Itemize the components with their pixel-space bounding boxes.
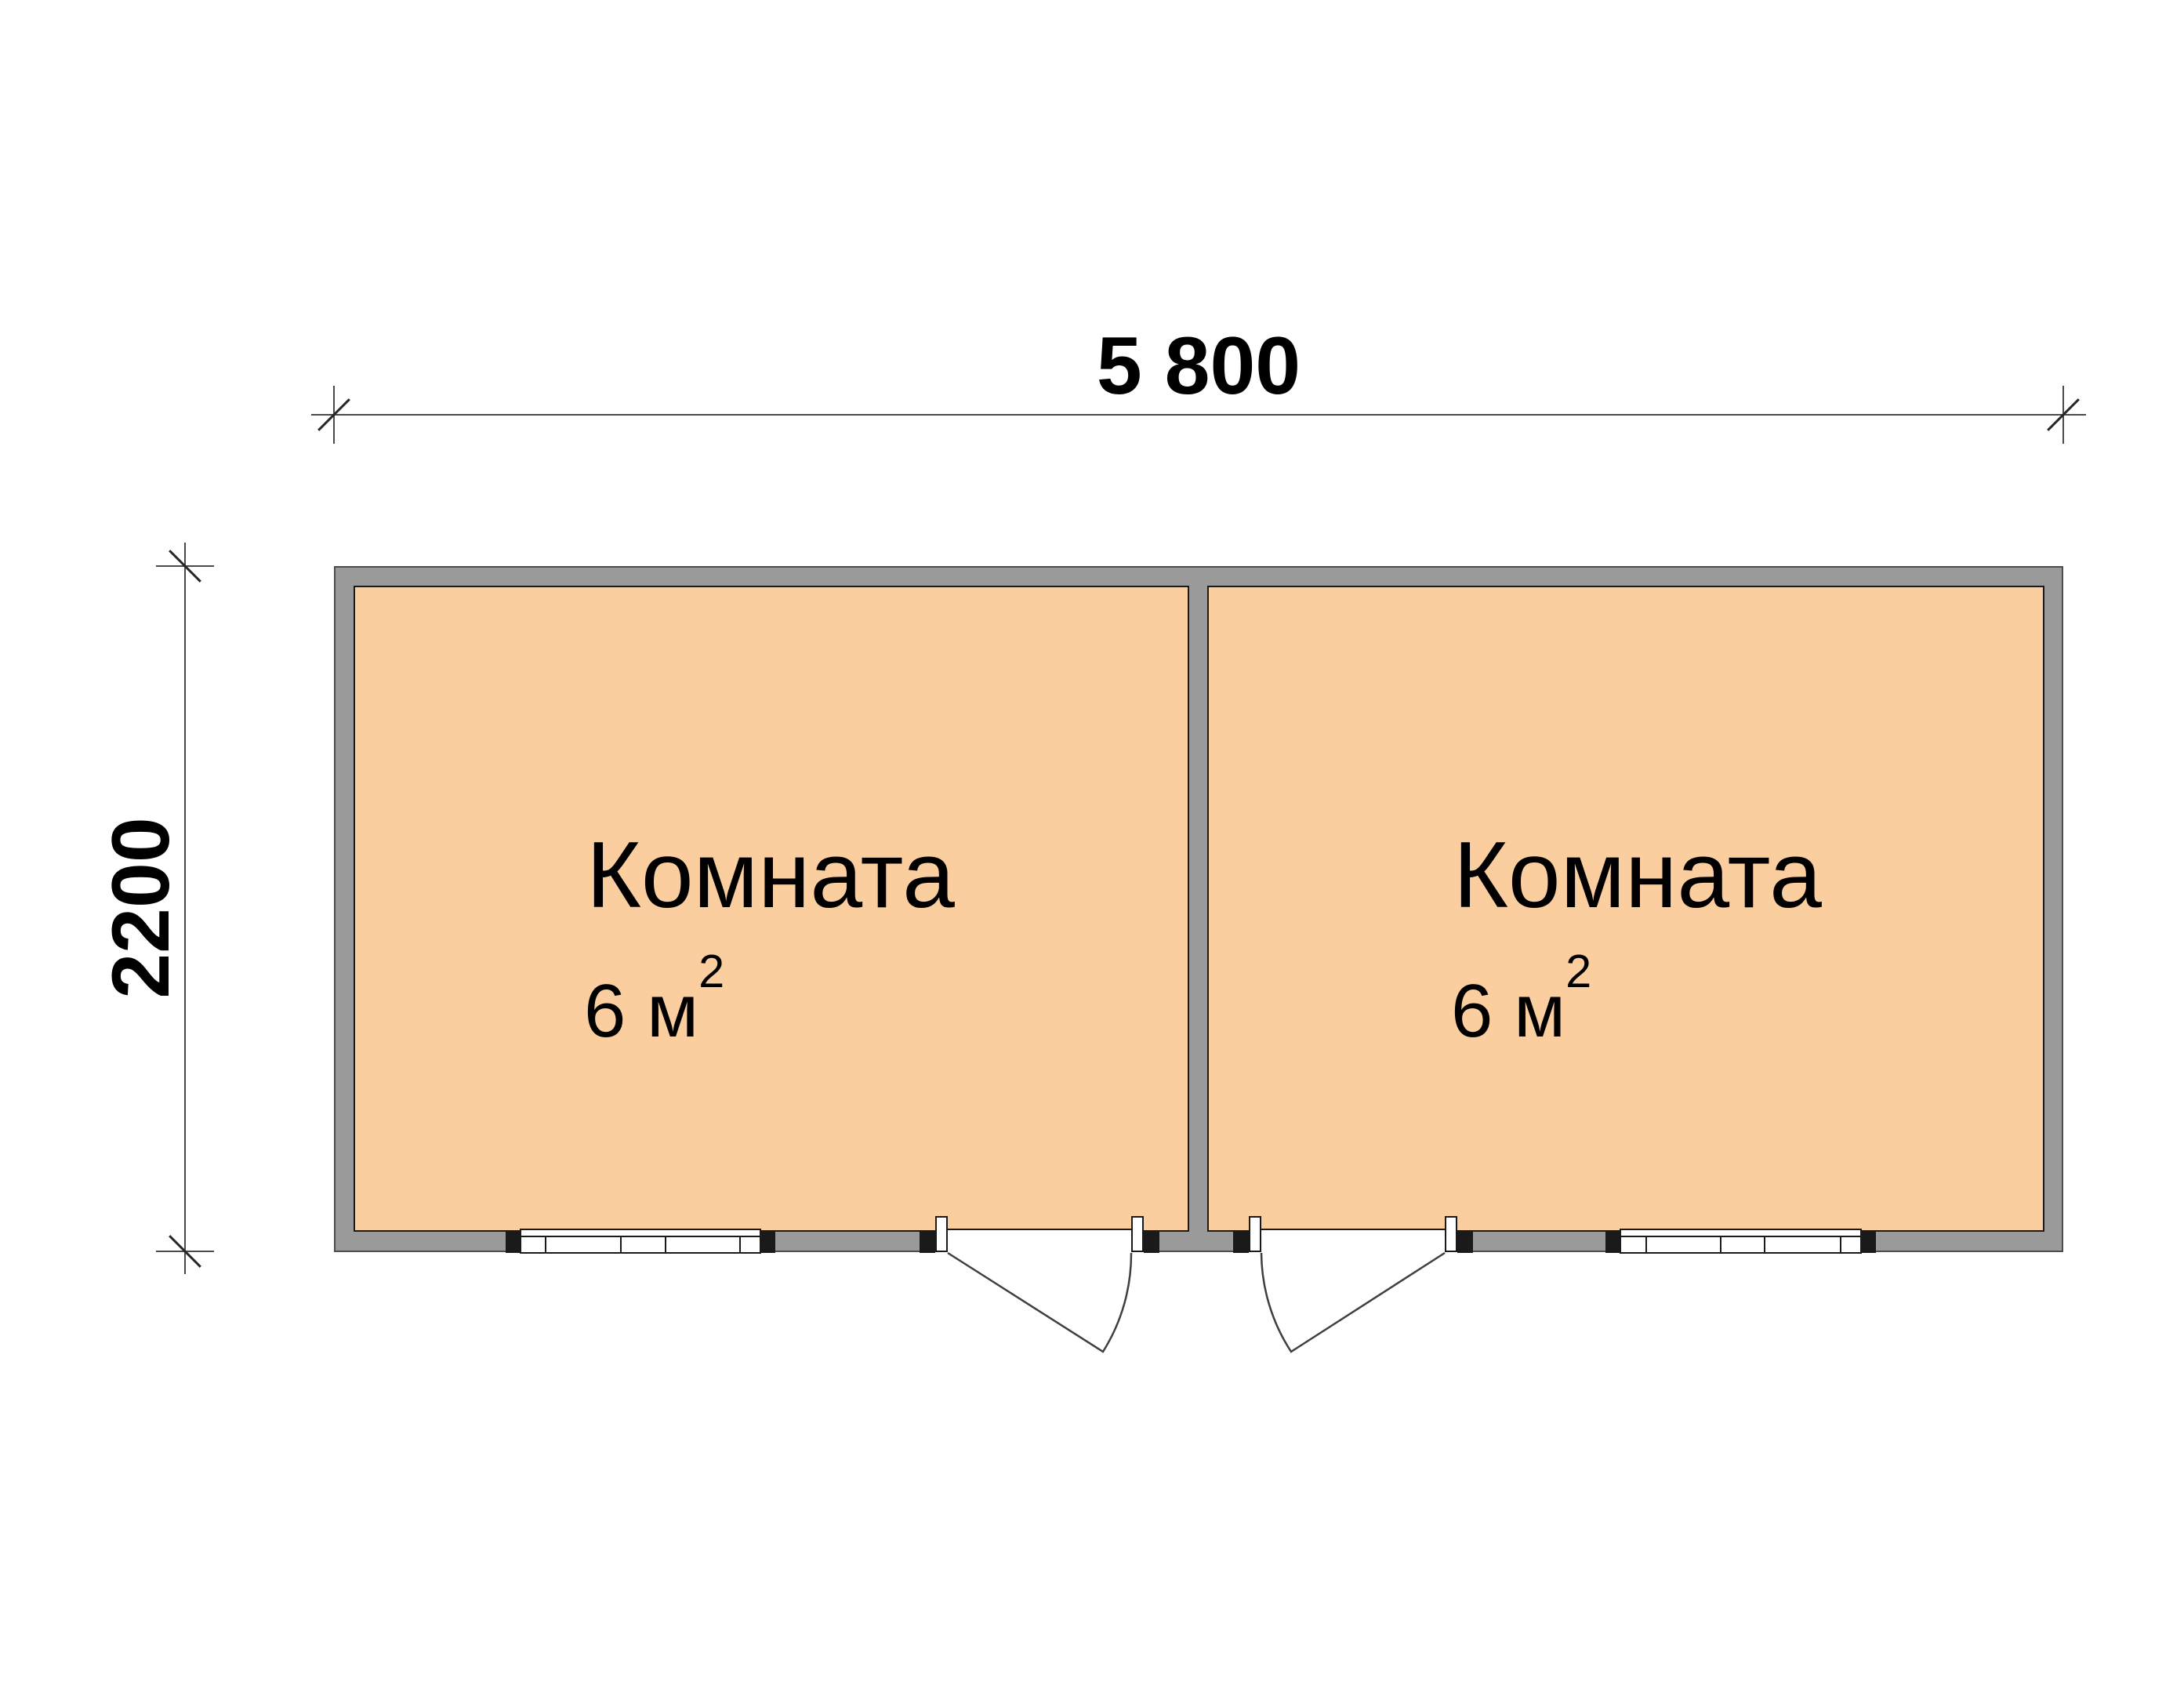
width-dimension-label: 5 800: [1097, 325, 1301, 407]
dimension-line-width: [311, 414, 2086, 416]
wall-cap: [760, 1230, 775, 1253]
wall-cap: [1233, 1230, 1249, 1253]
door-2-swing: [1261, 1253, 1445, 1352]
wall-cap: [506, 1230, 521, 1253]
wall-cap: [920, 1230, 935, 1253]
wall-cap: [1860, 1230, 1876, 1253]
window-2-mullion: [1840, 1237, 1841, 1252]
room-1-area-sup: 2: [698, 945, 724, 997]
door-2-jamb-left: [1249, 1216, 1261, 1252]
room-2-area-sup: 2: [1565, 945, 1591, 997]
room-2-area-value: 6 м: [1451, 969, 1565, 1053]
door-2-jamb-right: [1445, 1216, 1457, 1252]
window-2: [1620, 1229, 1862, 1254]
room-1-area: 6 м2: [584, 974, 724, 1049]
window-1: [520, 1229, 761, 1254]
window-1-mullion: [620, 1237, 622, 1252]
wall-cap: [1144, 1230, 1159, 1253]
window-2-mullion: [1645, 1237, 1647, 1252]
window-1-mullion: [739, 1237, 741, 1252]
window-2-mullion: [1720, 1237, 1721, 1252]
room-2-name: Комната: [1453, 828, 1822, 922]
window-1-mullion: [545, 1237, 546, 1252]
wall-cap: [1605, 1230, 1621, 1253]
door-1-opening: [948, 1229, 1131, 1256]
window-2-frame-line: [1621, 1236, 1860, 1237]
floor-plan: 5 800 2200 Комната 6 м2 Комната 6 м2: [0, 0, 2184, 1681]
window-1-mullion: [665, 1237, 666, 1252]
door-1-jamb-right: [1131, 1216, 1144, 1252]
window-1-frame-line: [521, 1236, 760, 1237]
door-1-jamb-left: [935, 1216, 948, 1252]
door-1-swing: [948, 1253, 1131, 1352]
window-2-mullion: [1764, 1237, 1765, 1252]
room-1-name: Комната: [586, 828, 955, 922]
room-2-area: 6 м2: [1451, 974, 1591, 1049]
room-1-area-value: 6 м: [584, 969, 698, 1053]
wall-cap: [1457, 1230, 1473, 1253]
height-dimension-label: 2200: [100, 817, 182, 998]
door-2-opening: [1261, 1229, 1445, 1256]
